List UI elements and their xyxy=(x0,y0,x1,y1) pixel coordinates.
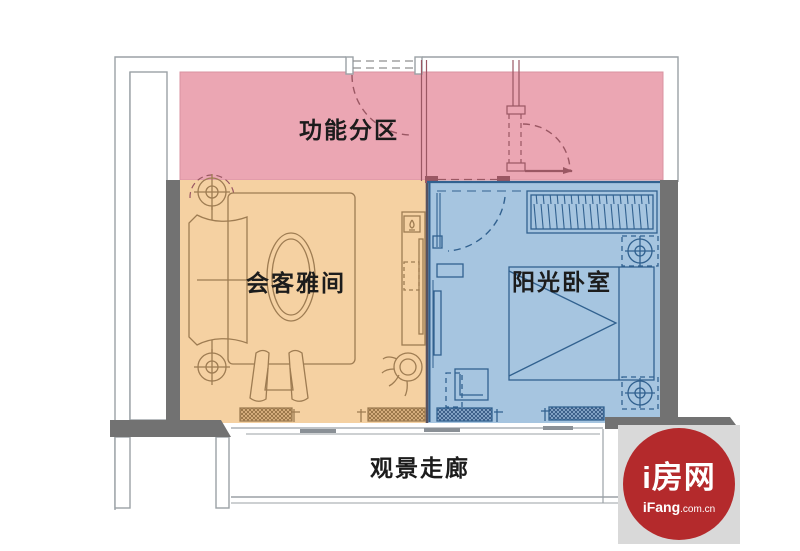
wall-left xyxy=(166,180,180,426)
window-sill-bar xyxy=(300,429,336,433)
watermark-logo: i房网 iFang.com.cn xyxy=(623,428,735,540)
floor-plan-page: 功能分区 会客雅间 阳光卧室 观景走廊 i房网 iFang.com.cn xyxy=(0,0,800,551)
label-living-room: 会客雅间 xyxy=(246,270,346,296)
label-corridor: 观景走廊 xyxy=(370,455,470,481)
watermark-site-text: iFang.com.cn xyxy=(643,500,715,516)
watermark-brand-text: i房网 xyxy=(642,462,716,493)
radiator xyxy=(437,408,492,421)
label-functional-zone: 功能分区 xyxy=(299,117,399,143)
radiator xyxy=(240,408,292,421)
window-sill-bar xyxy=(543,426,573,430)
window-sill-bar xyxy=(424,428,460,432)
watermark-site-bold: iFang xyxy=(643,499,680,515)
label-bedroom: 阳光卧室 xyxy=(512,269,612,295)
left-shaft-column xyxy=(130,72,167,420)
wall-right xyxy=(660,180,678,428)
wall-bottom-left xyxy=(110,420,231,437)
radiator xyxy=(368,408,425,421)
corridor-column-mid xyxy=(216,437,229,508)
watermark-panel: i房网 iFang.com.cn xyxy=(618,425,740,544)
watermark-site-suffix: .com.cn xyxy=(680,504,715,515)
radiator xyxy=(549,407,604,420)
top-door-opening xyxy=(353,61,415,68)
corridor-column-left xyxy=(115,437,130,508)
